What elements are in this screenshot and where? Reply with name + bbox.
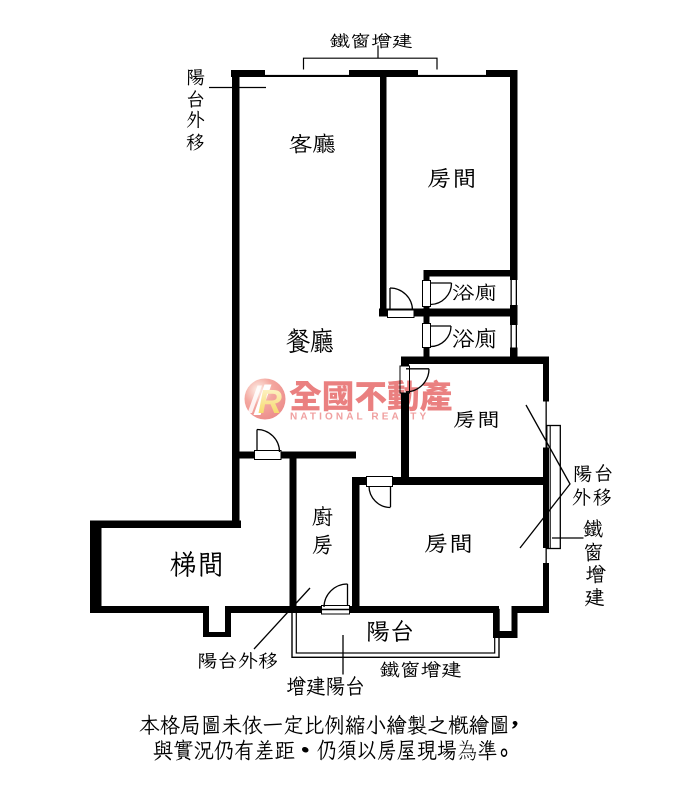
svg-text:NATIONAL REALTY: NATIONAL REALTY <box>290 412 429 423</box>
svg-text:R: R <box>258 383 282 420</box>
